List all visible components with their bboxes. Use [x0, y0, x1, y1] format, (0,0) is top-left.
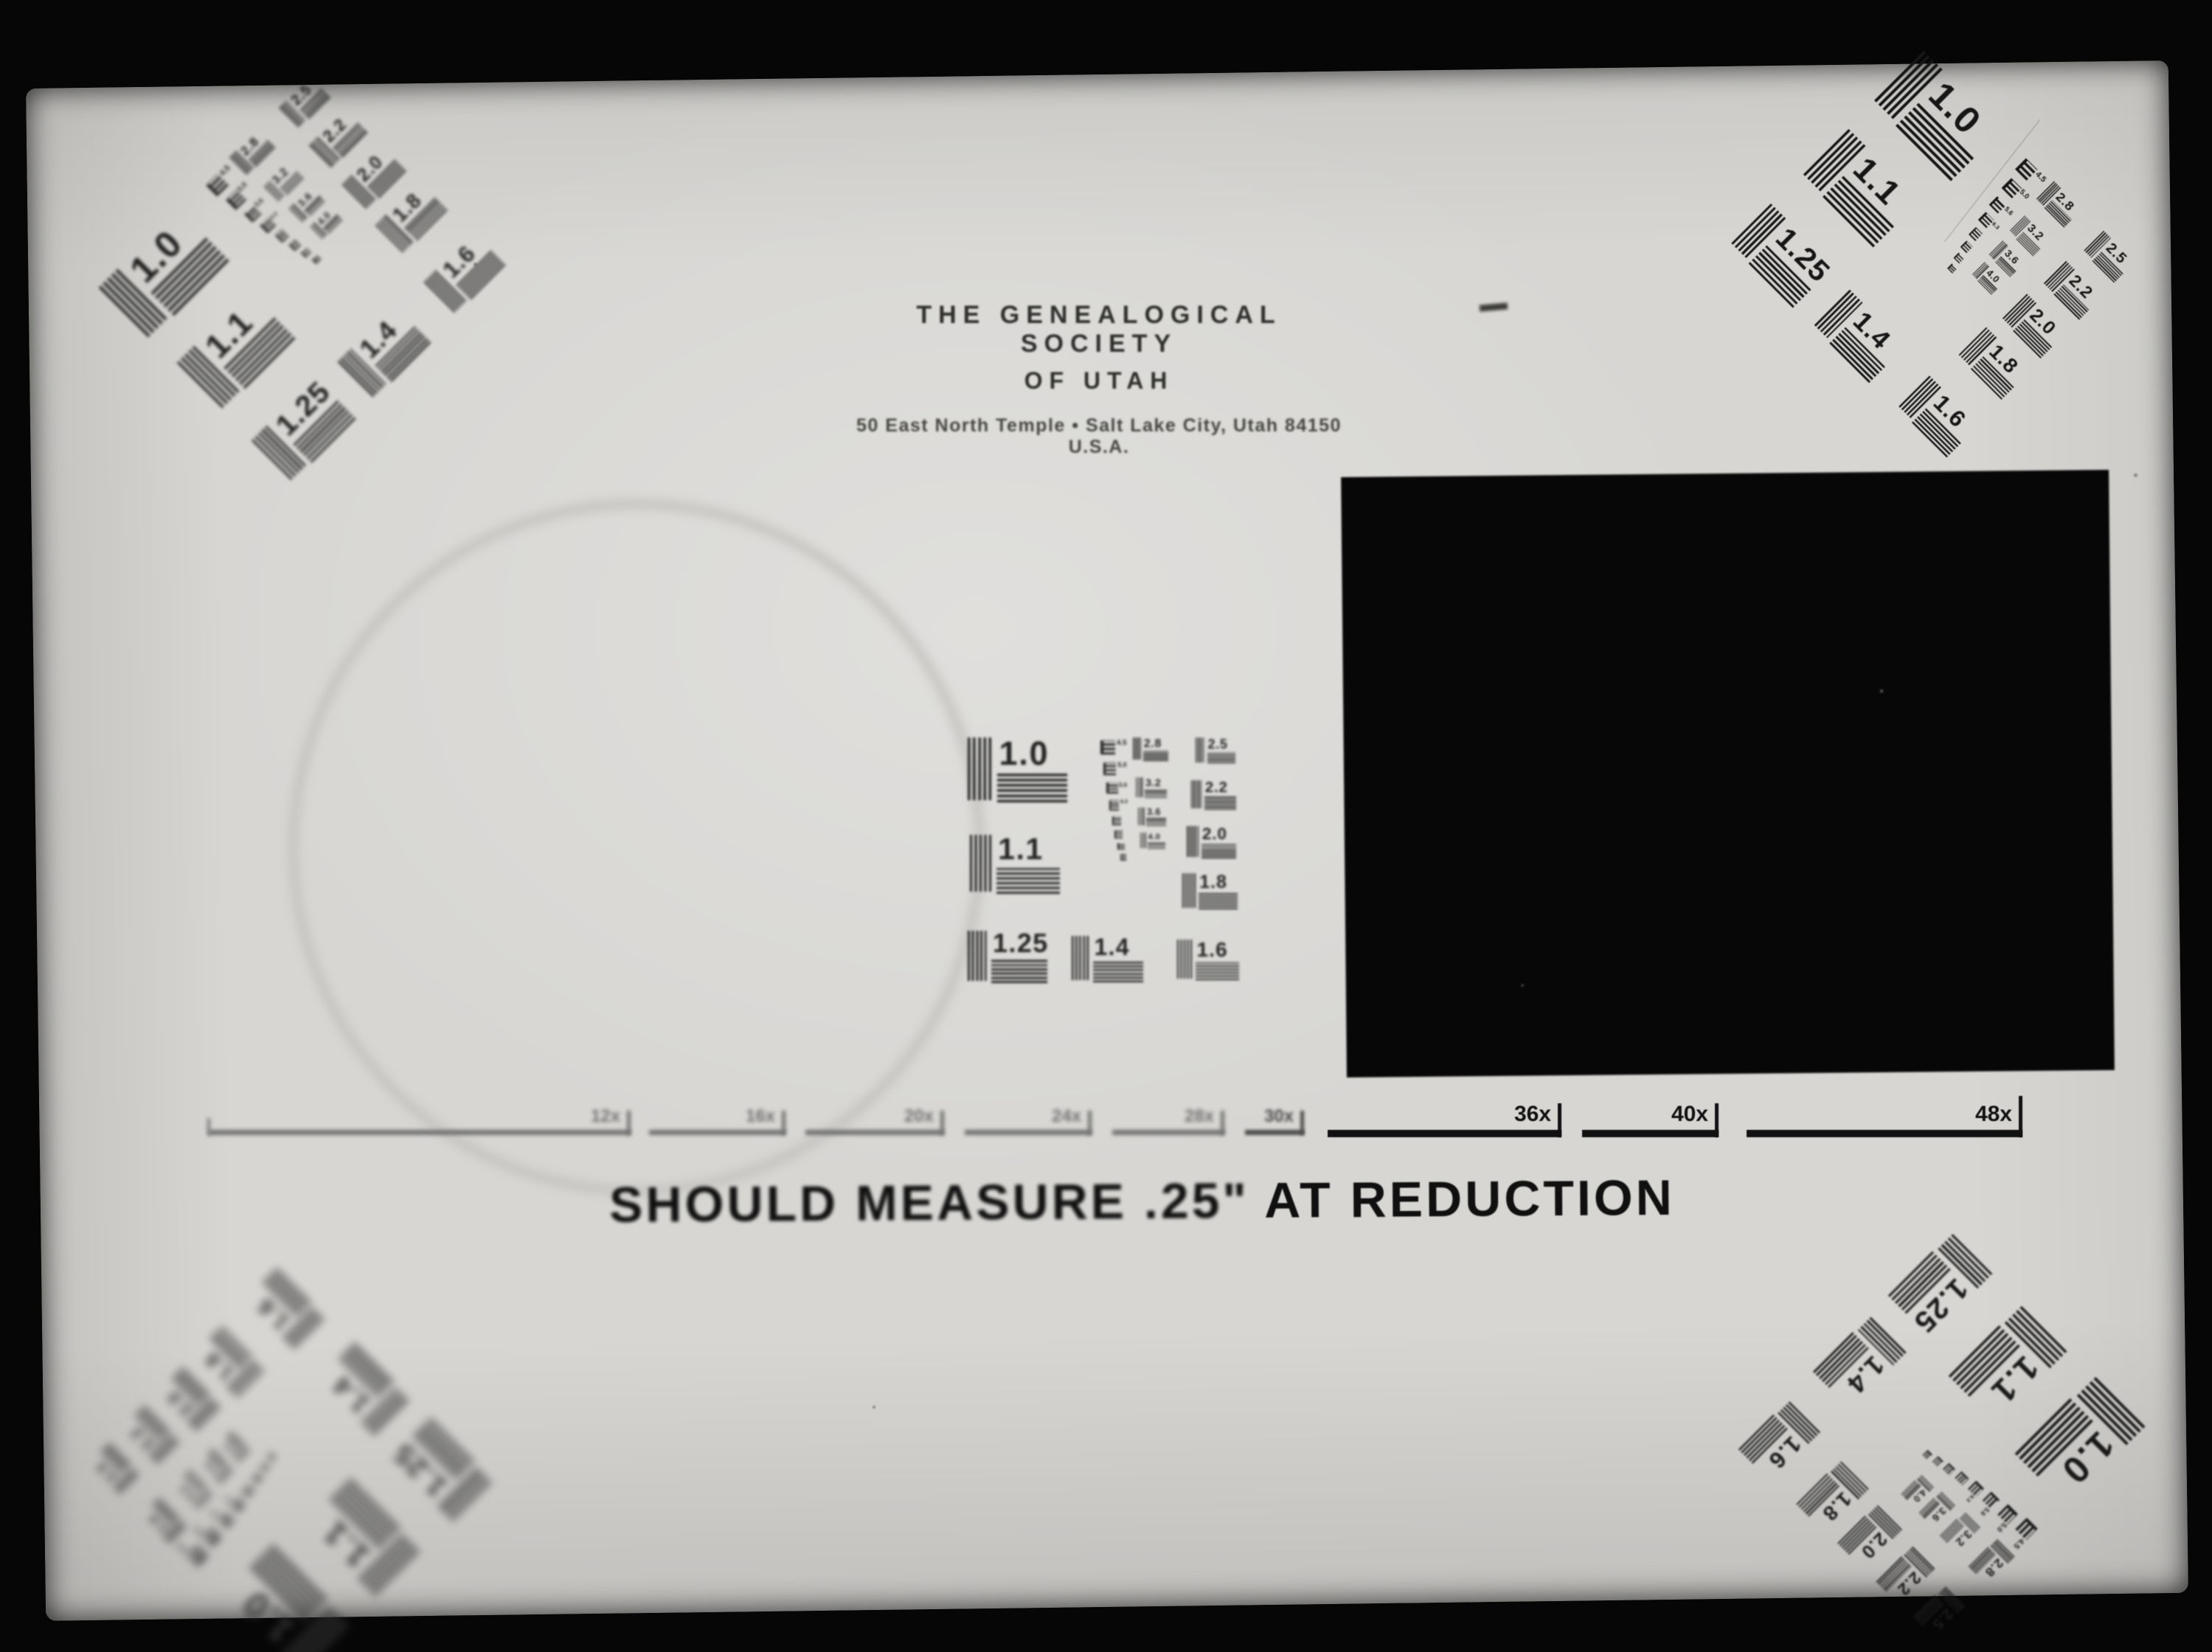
resolution-element-value: 2.2 — [1205, 781, 1228, 794]
micro-resolution-mark — [207, 174, 229, 196]
resolution-element: 3.6 — [1138, 808, 1166, 826]
micro-resolution-mark — [1932, 1457, 1944, 1468]
micro-resolution-mark — [1947, 264, 1958, 274]
micro-resolution-mark — [275, 229, 289, 243]
micro-resolution-mark — [1114, 830, 1123, 839]
ruler-label: 48x — [1919, 1103, 2012, 1125]
vertical-bars — [1191, 780, 1202, 809]
dust-speck — [474, 263, 477, 266]
vertical-bars — [970, 835, 991, 892]
vertical-bars — [968, 931, 987, 981]
micro-resolution-mark — [1954, 253, 1965, 264]
vertical-bars — [1182, 873, 1196, 908]
micro-resolution-mark — [1103, 763, 1116, 775]
micro-resolution-value: 5.6 — [2004, 206, 2014, 217]
micro-resolution-mark — [1106, 782, 1118, 794]
micro-resolution-value: 5.6 — [254, 198, 265, 208]
horizontal-bars — [1148, 842, 1165, 850]
resolution-element-value: 1.25 — [993, 931, 1049, 955]
horizontal-bars — [1199, 893, 1238, 909]
ruler-segment — [209, 1130, 631, 1135]
resolution-element: 4.0 — [1140, 833, 1165, 850]
scanned-test-target: THE GENEALOGICAL SOCIETY OF UTAH 50 East… — [0, 0, 2212, 1652]
ruler-tick — [1558, 1103, 1561, 1137]
resolution-element-value: 3.6 — [1147, 808, 1161, 816]
micro-resolution-value: 5.0 — [2018, 190, 2030, 201]
vertical-bars — [1133, 737, 1142, 760]
horizontal-bars — [997, 774, 1067, 802]
vertical-bars — [1140, 833, 1146, 848]
ruler-tick — [627, 1111, 631, 1135]
resolution-element-value: 2.0 — [1202, 827, 1227, 841]
ruler-segment — [805, 1130, 944, 1135]
ruler-segment — [965, 1130, 1092, 1135]
ruler-label: 20x — [841, 1108, 934, 1125]
micro-resolution-value: 4.5 — [2012, 1537, 2025, 1550]
resolution-element: 1.1 — [970, 835, 1062, 895]
micro-resolution-mark — [251, 1473, 263, 1485]
micro-resolution-mark — [241, 1485, 255, 1499]
ruler-origin-tick — [207, 1118, 210, 1136]
ruler-tick — [782, 1111, 786, 1135]
micro-resolution-mark — [1955, 1471, 1969, 1485]
resolution-target-center: 1.01.11.251.41.61.82.02.22.52.83.23.64.0… — [968, 737, 1241, 985]
micro-resolution-mark — [312, 254, 322, 265]
ruler-segment — [649, 1130, 786, 1135]
resolution-element-value: 2.8 — [1144, 738, 1162, 749]
ruler-segment — [1245, 1130, 1304, 1135]
vertical-bars — [1196, 737, 1205, 763]
ruler-label: 36x — [1458, 1103, 1551, 1125]
micro-resolution-mark — [244, 205, 262, 223]
micro-resolution-mark — [288, 239, 301, 251]
resolution-element: 1.8 — [1182, 873, 1239, 910]
resolution-element: 2.8 — [1133, 737, 1169, 761]
micro-resolution-mark — [1969, 227, 1983, 241]
vertical-bars — [1072, 936, 1089, 981]
ruler-label: 16x — [682, 1108, 775, 1125]
micro-resolution-mark — [1109, 800, 1119, 810]
resolution-element: 2.0 — [1187, 826, 1238, 859]
dust-speck — [873, 1406, 876, 1409]
horizontal-bars — [1202, 844, 1237, 858]
ruler-label: 12x — [527, 1108, 620, 1125]
resolution-element: 2.2 — [1191, 780, 1238, 811]
micro-resolution-mark — [1100, 740, 1115, 754]
micro-resolution-mark — [1960, 240, 1973, 253]
ruler-label: 40x — [1615, 1103, 1708, 1125]
resolution-element: 1.6 — [1177, 940, 1241, 981]
micro-resolution-mark — [1944, 1463, 1956, 1476]
resolution-element-value: 4.0 — [1148, 833, 1160, 841]
vertical-bars — [968, 737, 991, 800]
vertical-bars — [1177, 940, 1192, 979]
ruler-label: 30x — [1201, 1108, 1294, 1125]
resolution-element: 2.2 — [121, 1404, 181, 1465]
resolution-element: 1.4 — [1072, 936, 1144, 983]
resolution-element: 2.2 — [1875, 1546, 1935, 1606]
resolution-element-value: 1.8 — [1199, 874, 1227, 891]
micro-resolution-mark — [1112, 816, 1121, 825]
micro-resolution-value: 6.3 — [1991, 221, 2001, 231]
micro-resolution-value: 4.5 — [2034, 171, 2048, 184]
resolution-element: 1.25 — [968, 931, 1049, 984]
ruler-segment — [1582, 1130, 1719, 1137]
micro-resolution-value: 5.6 — [1980, 1507, 1990, 1517]
caption-right: AT REDUCTION — [1249, 1170, 1675, 1229]
micro-resolution-value: 5.6 — [1119, 782, 1127, 788]
resolution-element: 2.5 — [1196, 737, 1236, 764]
resolution-element: 1.0 — [968, 737, 1069, 804]
micro-resolution-mark — [1922, 1450, 1932, 1460]
ruler-tick — [1715, 1103, 1719, 1137]
micro-resolution-mark — [1120, 854, 1126, 860]
micro-resolution-mark — [260, 218, 277, 234]
ruler-tick — [1088, 1111, 1092, 1135]
ruler-segment — [1328, 1130, 1561, 1137]
horizontal-bars — [996, 868, 1061, 895]
micro-resolution-value: 5.0 — [1117, 763, 1126, 768]
resolution-element-value: 1.1 — [998, 836, 1044, 863]
vertical-bars — [1136, 777, 1143, 797]
resolution-element: 3.2 — [1136, 777, 1168, 798]
dust-speck — [2134, 473, 2138, 477]
horizontal-bars — [1146, 818, 1165, 826]
micro-resolution-mark — [266, 1451, 277, 1462]
vertical-bars — [1187, 826, 1199, 858]
micro-resolution-mark — [259, 1462, 270, 1473]
caption-left: SHOULD MEASURE .25" — [609, 1173, 1249, 1233]
resolution-element: 2.2 — [309, 109, 370, 170]
micro-resolution-mark — [301, 247, 312, 258]
micro-resolution-value: 6.3 — [1120, 800, 1128, 805]
horizontal-bars — [1204, 796, 1236, 810]
ruler-label: 24x — [988, 1108, 1081, 1125]
horizontal-bars — [1207, 752, 1235, 764]
horizontal-bars — [1145, 789, 1167, 798]
resolution-element-value: 1.4 — [1094, 937, 1129, 958]
resolution-element: 4.0 — [311, 207, 344, 240]
micro-resolution-mark — [226, 190, 246, 210]
horizontal-bars — [991, 959, 1047, 982]
ruler-tick — [940, 1111, 944, 1135]
ruler-segment — [1112, 1130, 1224, 1135]
caption: SHOULD MEASURE .25" AT REDUCTION — [609, 1169, 1675, 1234]
horizontal-bars — [1143, 751, 1168, 761]
horizontal-bars — [1093, 962, 1143, 982]
micro-resolution-value: 4.5 — [219, 164, 232, 178]
ruler-segment — [1747, 1130, 2022, 1137]
resolution-element-value: 3.2 — [1145, 778, 1161, 788]
ruler-tick — [2019, 1096, 2022, 1137]
ruler-tick — [1300, 1111, 1304, 1135]
micro-resolution-value: 4.5 — [1117, 740, 1127, 747]
horizontal-bars — [1196, 962, 1240, 980]
vertical-bars — [263, 181, 285, 202]
resolution-element-value: 2.5 — [1208, 738, 1228, 750]
resolution-element: 3.2 — [1940, 1511, 1981, 1552]
resolution-element-value: 1.6 — [1196, 940, 1227, 959]
micro-resolution-mark — [1117, 843, 1125, 850]
vertical-bars — [1138, 808, 1145, 825]
resolution-element-value: 1.0 — [999, 739, 1050, 769]
